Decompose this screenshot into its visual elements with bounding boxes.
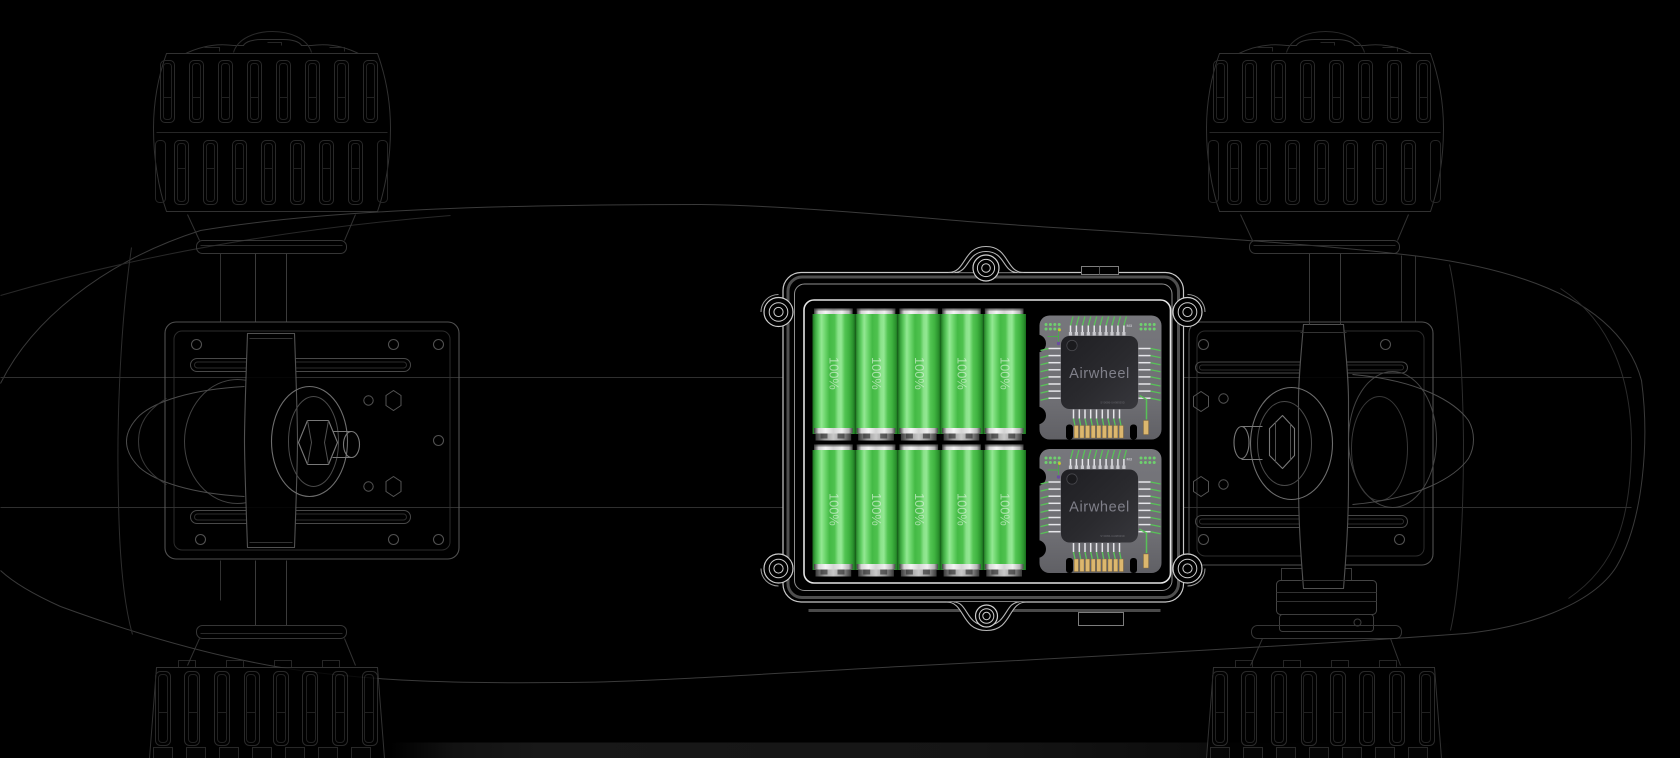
svg-text:100%: 100% [869,357,884,390]
svg-text:Airwheel: Airwheel [1069,500,1130,516]
svg-text:100%: 100% [997,357,1012,390]
svg-text:100%: 100% [827,493,842,526]
svg-text:100%: 100% [997,493,1012,526]
svg-text:100%: 100% [869,493,884,526]
svg-text:100%: 100% [912,357,927,390]
svg-text:Airwheel: Airwheel [1069,366,1130,382]
svg-text:100%: 100% [912,493,927,526]
svg-text:100%: 100% [955,357,970,390]
svg-text:SY0086-UA98939D: SY0086-UA98939D [1100,534,1125,538]
svg-text:100%: 100% [955,493,970,526]
svg-text:SY0086-UA98939D: SY0086-UA98939D [1100,401,1125,405]
svg-text:M3: M3 [1127,323,1133,328]
svg-text:M3: M3 [1127,457,1133,462]
svg-text:100%: 100% [827,357,842,390]
